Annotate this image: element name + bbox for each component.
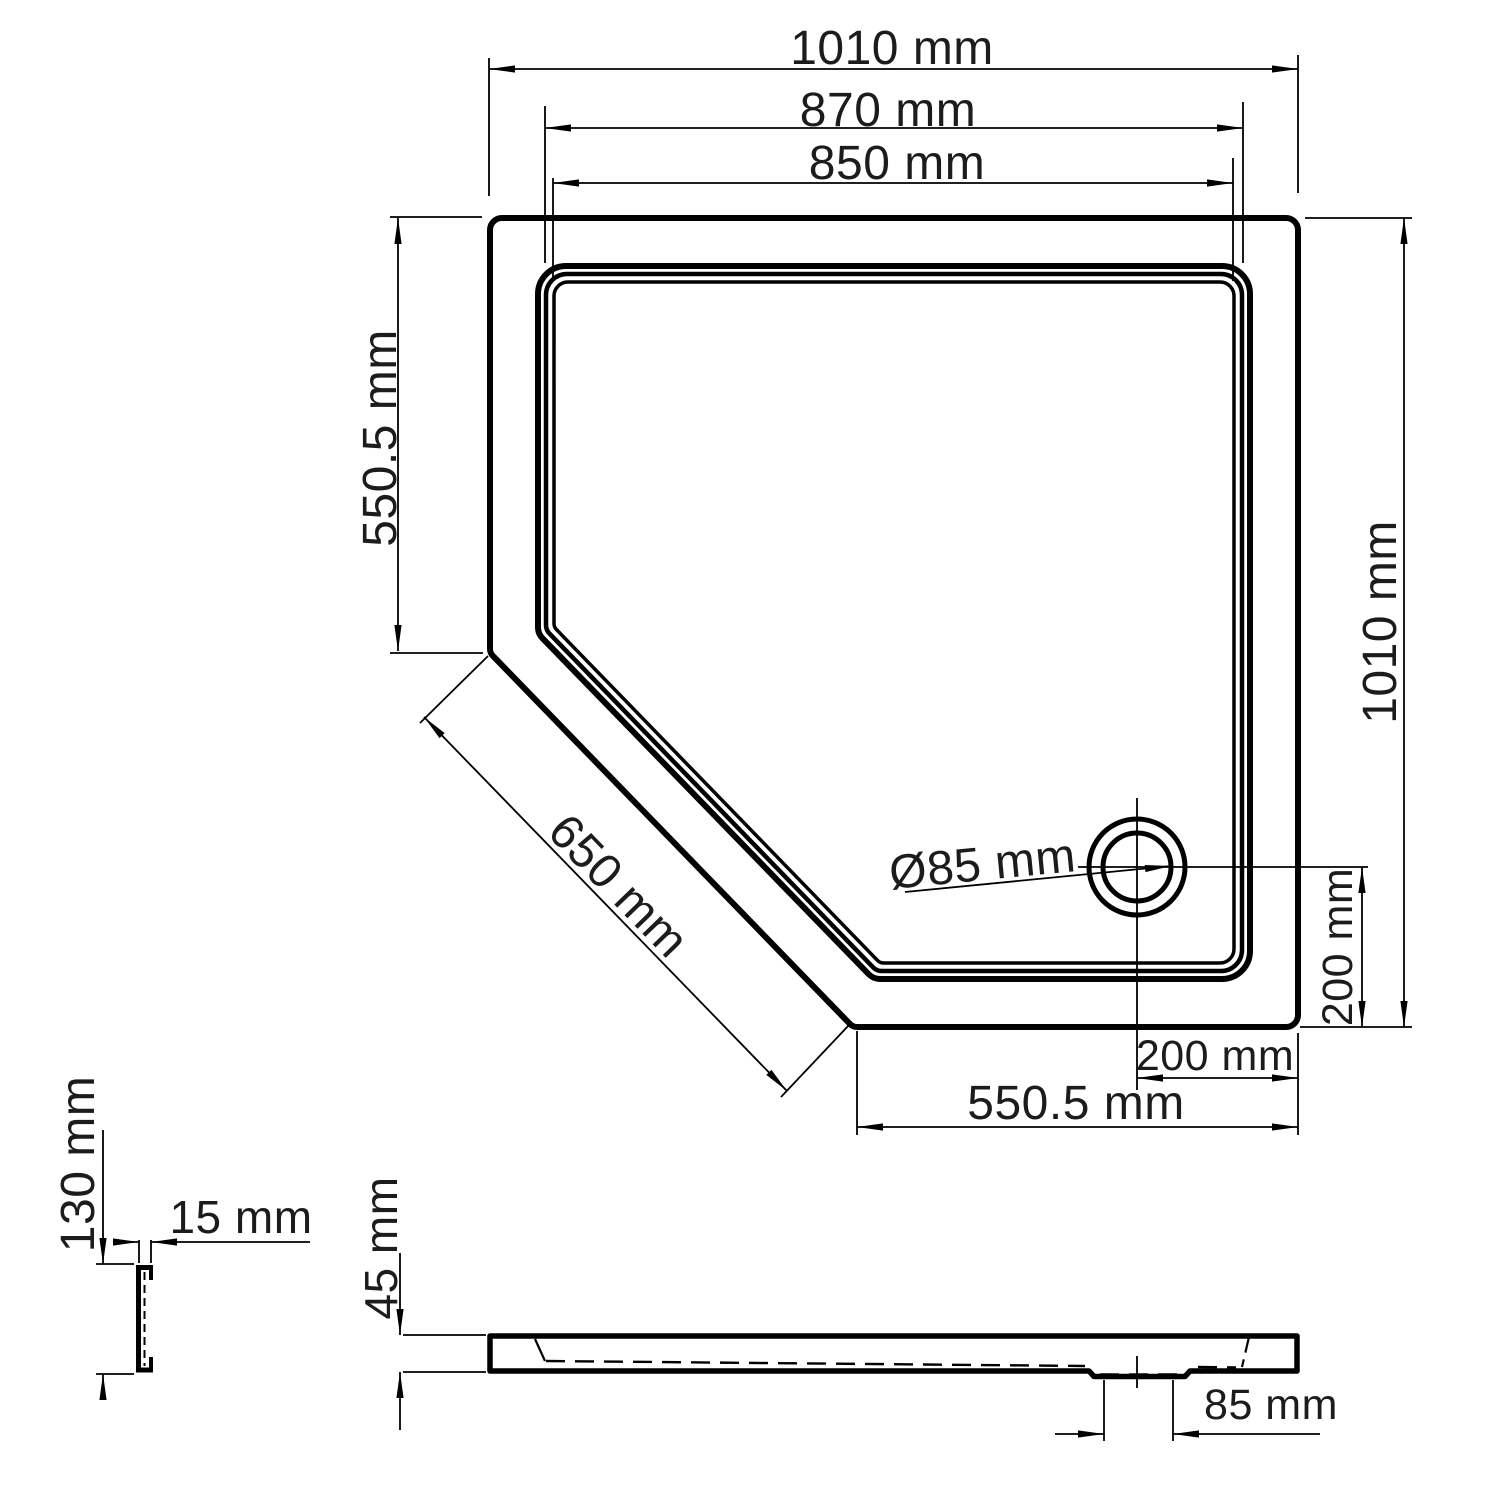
dim-left-edge-label: 550.5 mm — [354, 329, 407, 546]
dim-drain-recess-width-label: 85 mm — [1204, 1381, 1338, 1429]
dim-overall-width-label: 1010 mm — [790, 22, 994, 75]
edge-profile-detail — [136, 1266, 153, 1372]
dim-profile-height-label: 130 mm — [52, 1076, 105, 1252]
edge-profile-dimensions: 130 mm 15 mm — [52, 1076, 313, 1400]
dim-rim-outer-width-label: 870 mm — [800, 84, 976, 137]
dim-rim-inner-width-label: 850 mm — [809, 137, 985, 190]
side-view-outline — [490, 1336, 1297, 1377]
shower-tray-technical-drawing: 1010 mm 870 mm 850 mm 550.5 mm 1010 mm 6… — [0, 0, 1500, 1500]
ext-line — [781, 1024, 850, 1097]
dim-profile-depth-label: 15 mm — [169, 1191, 312, 1243]
side-view-dimensions: 45 mm 85 mm — [355, 1176, 1338, 1441]
dim-bottom-edge-label: 550.5 mm — [967, 1077, 1184, 1130]
dim-drain-offset-vertical-label: 200 mm — [1314, 868, 1362, 1026]
ext-line — [420, 656, 488, 723]
dim-overall-depth-label: 1010 mm — [1354, 520, 1407, 724]
dim-tray-height-label: 45 mm — [355, 1176, 407, 1319]
side-view — [490, 1336, 1297, 1388]
plan-view — [490, 218, 1368, 1090]
dim-drain-offset-horizontal-label: 200 mm — [1136, 1032, 1294, 1080]
drawing-canvas: 1010 mm 870 mm 850 mm 550.5 mm 1010 mm 6… — [0, 0, 1500, 1500]
